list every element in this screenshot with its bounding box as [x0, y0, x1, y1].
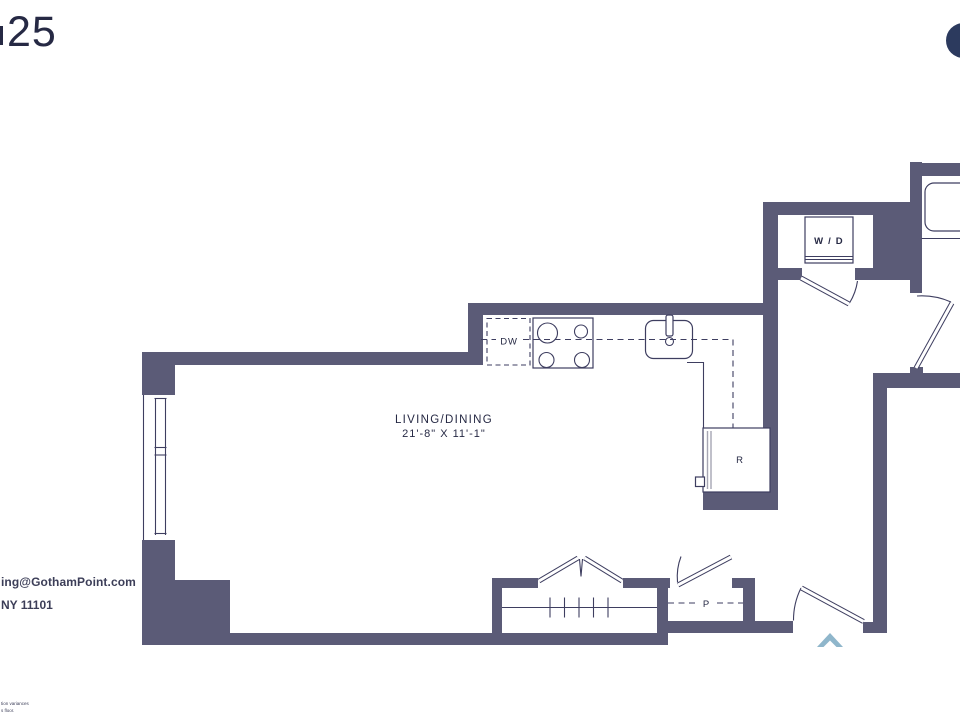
- wall-segment: [142, 352, 175, 395]
- wall-segment: [703, 492, 778, 510]
- floorplan-page: 25: [0, 0, 960, 720]
- footer-fineprint: tion variances s floor.: [1, 700, 29, 714]
- wd-door-arc: [850, 281, 858, 303]
- pantry-closet: P: [668, 557, 743, 611]
- fineprint-line: tion variances: [1, 700, 29, 707]
- refrigerator-handle: [696, 477, 705, 487]
- bathroom: [916, 183, 960, 368]
- bathtub: [925, 183, 960, 231]
- wall-segment: [623, 578, 670, 588]
- living-dining-dimensions: 21'-8" X 11'-1": [402, 428, 486, 440]
- wall-segment: [873, 212, 910, 280]
- wall-segment: [668, 621, 793, 633]
- wall-segment: [743, 578, 755, 622]
- living-dining-label: LIVING/DINING: [395, 414, 493, 426]
- floorplan-drawing: DW R W / D: [0, 0, 960, 720]
- wall-segment: [863, 622, 887, 633]
- wall-segment: [492, 578, 502, 635]
- wall-segment: [855, 268, 875, 280]
- washer-dryer-closet: W / D: [801, 217, 858, 304]
- bathroom-door-arc: [917, 296, 951, 302]
- wall-segment: [657, 578, 668, 645]
- wd-door-leaf-inner: [801, 278, 849, 304]
- entry-door: [793, 588, 863, 622]
- wall-segment: [910, 163, 960, 176]
- wall-segment: [142, 352, 478, 365]
- footer-email-fragment: ing@GothamPoint.com: [1, 575, 136, 589]
- fineprint-line: s floor.: [1, 707, 29, 714]
- wall-segment: [777, 268, 802, 280]
- north-arrow-icon: [817, 633, 843, 647]
- dishwasher-label: DW: [500, 337, 517, 348]
- refrigerator-label: R: [736, 455, 744, 466]
- closet-door-leaf-left-inner: [539, 558, 578, 581]
- footer-address-fragment: NY 11101: [1, 598, 53, 612]
- pantry-door-leaf-inner: [678, 557, 731, 585]
- kitchen: DW: [481, 315, 733, 428]
- wall-segment: [873, 373, 887, 633]
- counter-edge-line: [687, 363, 704, 429]
- pantry-label: P: [703, 599, 710, 610]
- wall-segment: [142, 580, 230, 633]
- sink-faucet: [666, 315, 673, 336]
- wall-segment: [910, 162, 922, 293]
- entry-door-arc: [793, 588, 801, 621]
- wall-segment: [468, 303, 765, 315]
- bathroom-door-leaf-inner: [916, 303, 952, 368]
- closet-door-center-notch: [580, 559, 583, 577]
- wall-segment: [142, 633, 668, 645]
- window-left: [144, 395, 167, 540]
- washer-dryer-label: W / D: [814, 236, 844, 247]
- closet-door-leaf-right-inner: [585, 558, 623, 581]
- entry-door-leaf-inner: [802, 588, 864, 622]
- pantry-door-arc: [677, 557, 681, 583]
- refrigerator: R: [696, 428, 771, 492]
